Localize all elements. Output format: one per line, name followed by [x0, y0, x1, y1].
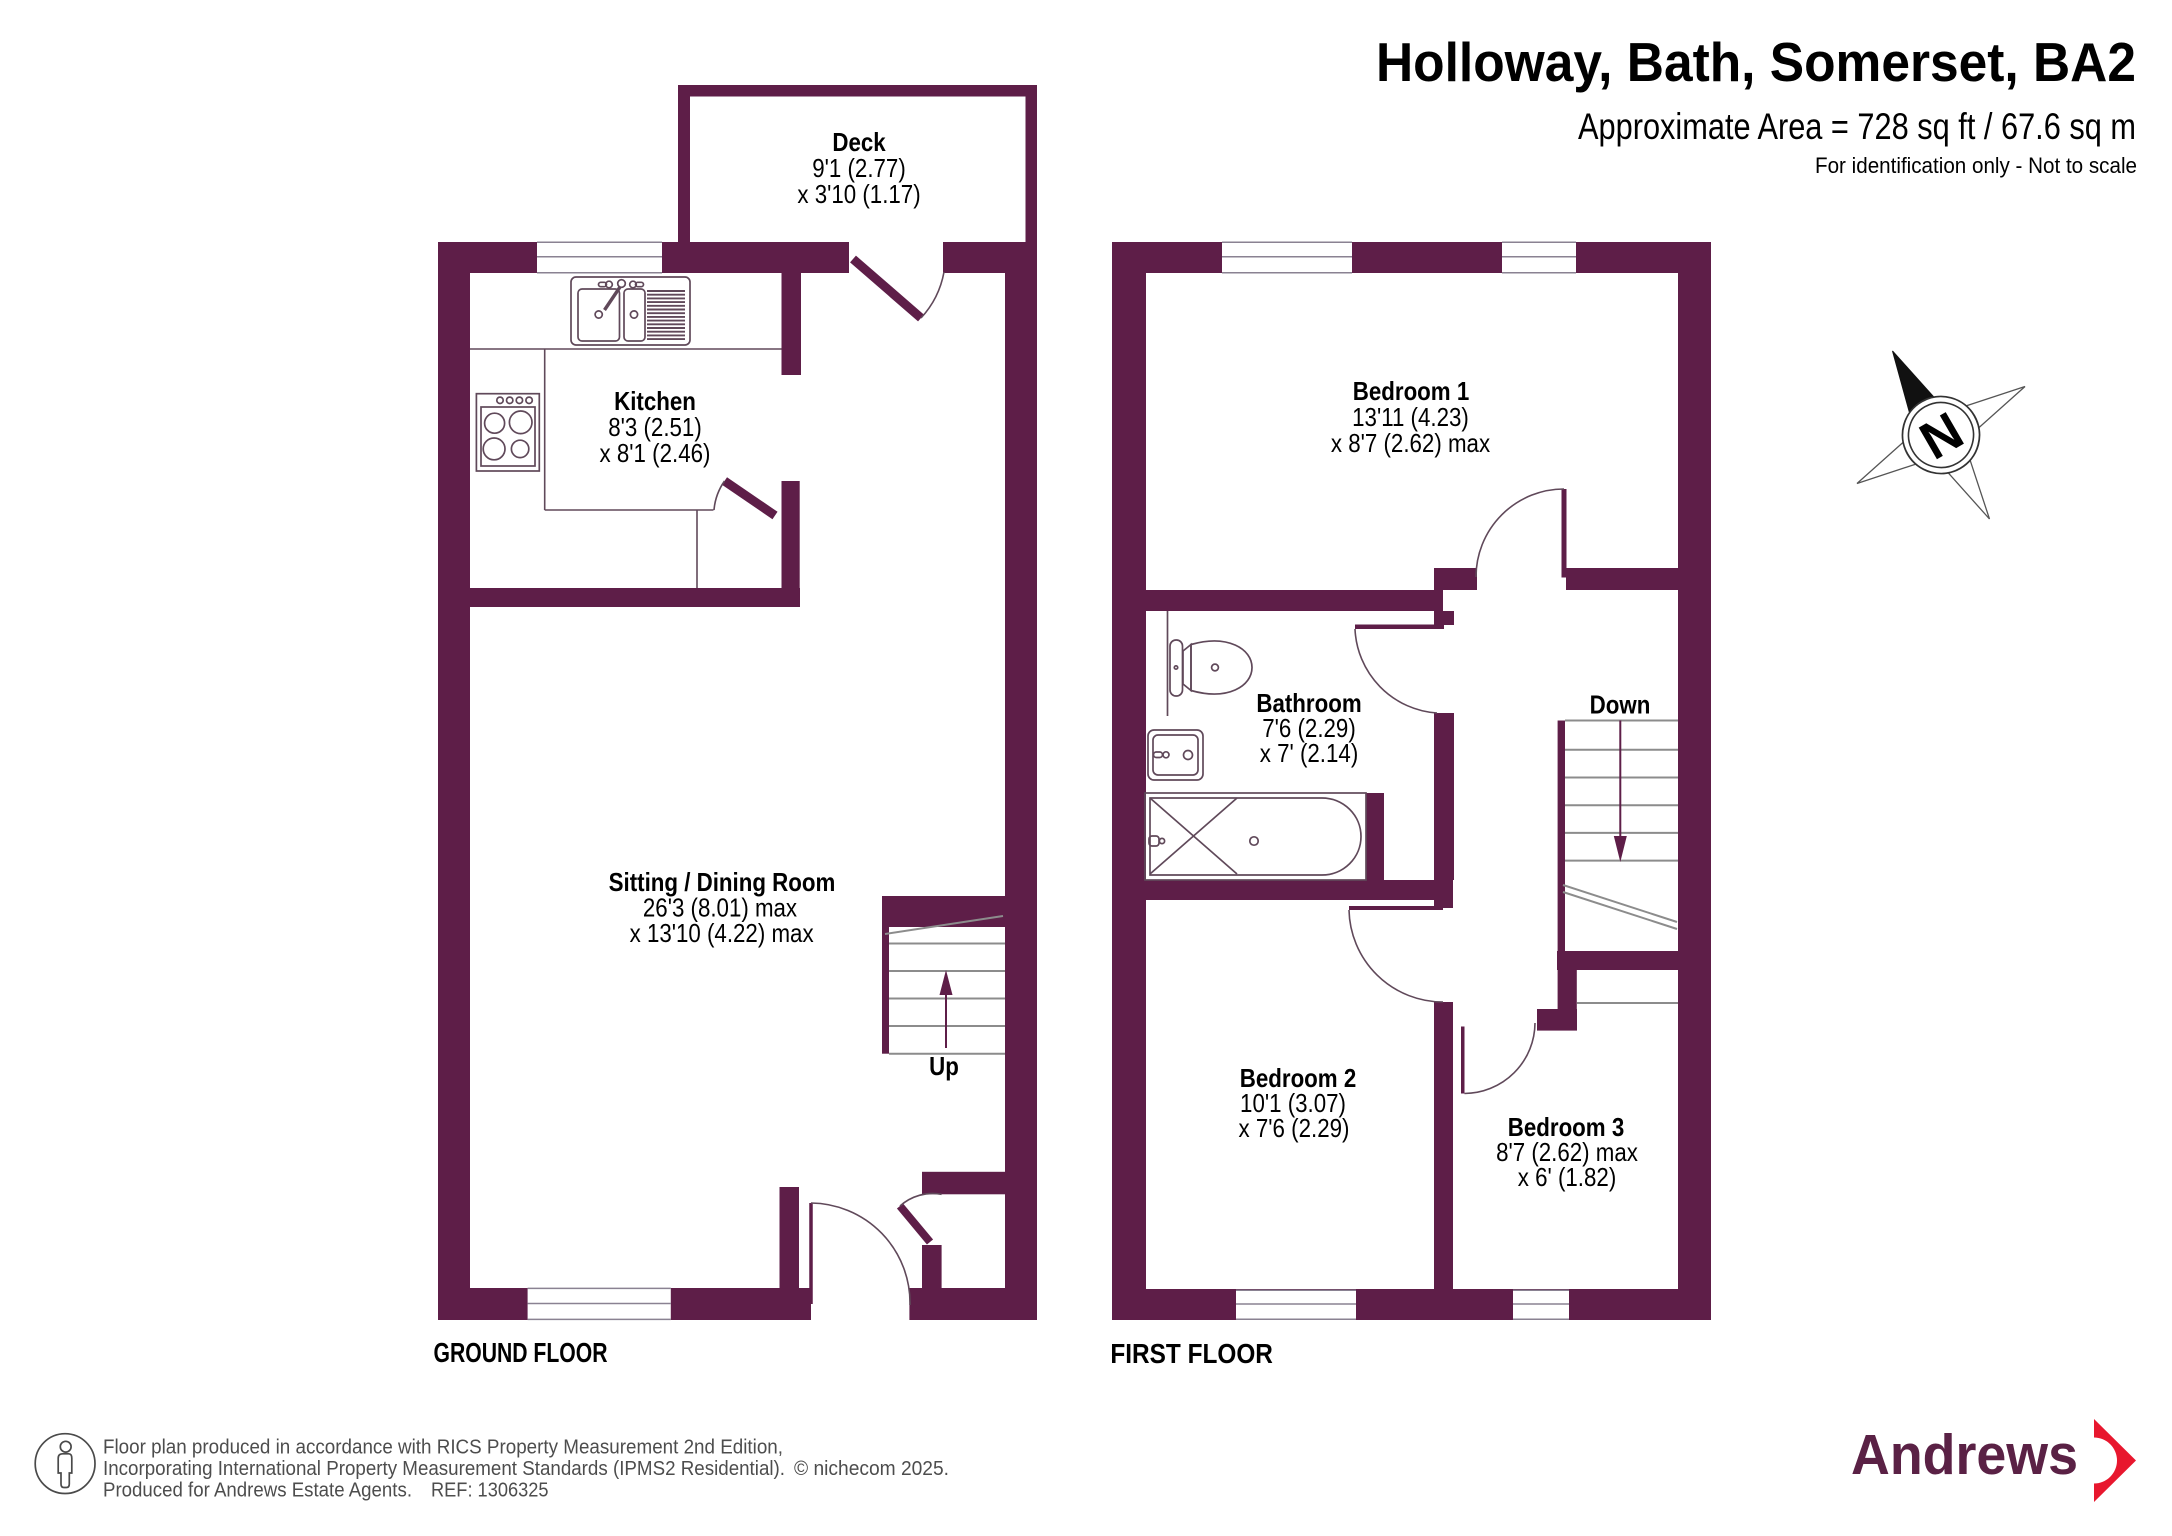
svg-text:FIRST FLOOR: FIRST FLOOR [1110, 1338, 1273, 1369]
svg-text:Down: Down [1590, 690, 1651, 720]
svg-text:For identification only - Not: For identification only - Not to scale [1815, 153, 2137, 178]
svg-text:Floor plan produced in accorda: Floor plan produced in accordance with R… [103, 1436, 783, 1458]
svg-text:Approximate Area = 728 sq ft /: Approximate Area = 728 sq ft / 67.6 sq m [1578, 106, 2136, 147]
svg-text:REF: 1306325: REF: 1306325 [431, 1480, 549, 1502]
svg-text:x 6' (1.82): x 6' (1.82) [1518, 1162, 1617, 1192]
svg-text:x 8'7 (2.62) max: x 8'7 (2.62) max [1331, 428, 1490, 458]
svg-text:Up: Up [929, 1051, 959, 1081]
svg-text:GROUND FLOOR: GROUND FLOOR [434, 1337, 608, 1368]
svg-text:Andrews: Andrews [1851, 1423, 2078, 1487]
svg-text:© nichecom 2025.: © nichecom 2025. [794, 1458, 949, 1480]
svg-text:x 7' (2.14): x 7' (2.14) [1260, 738, 1359, 768]
svg-text:Produced for Andrews Estate Ag: Produced for Andrews Estate Agents. [103, 1480, 412, 1502]
svg-text:x 8'1 (2.46): x 8'1 (2.46) [600, 438, 711, 468]
svg-text:x 7'6 (2.29): x 7'6 (2.29) [1239, 1113, 1350, 1143]
svg-text:Incorporating International Pr: Incorporating International Property Mea… [103, 1458, 785, 1480]
svg-text:x 13'10 (4.22) max: x 13'10 (4.22) max [630, 918, 814, 948]
svg-text:x 3'10 (1.17): x 3'10 (1.17) [797, 179, 920, 209]
svg-text:Holloway, Bath, Somerset, BA2: Holloway, Bath, Somerset, BA2 [1376, 31, 2136, 93]
